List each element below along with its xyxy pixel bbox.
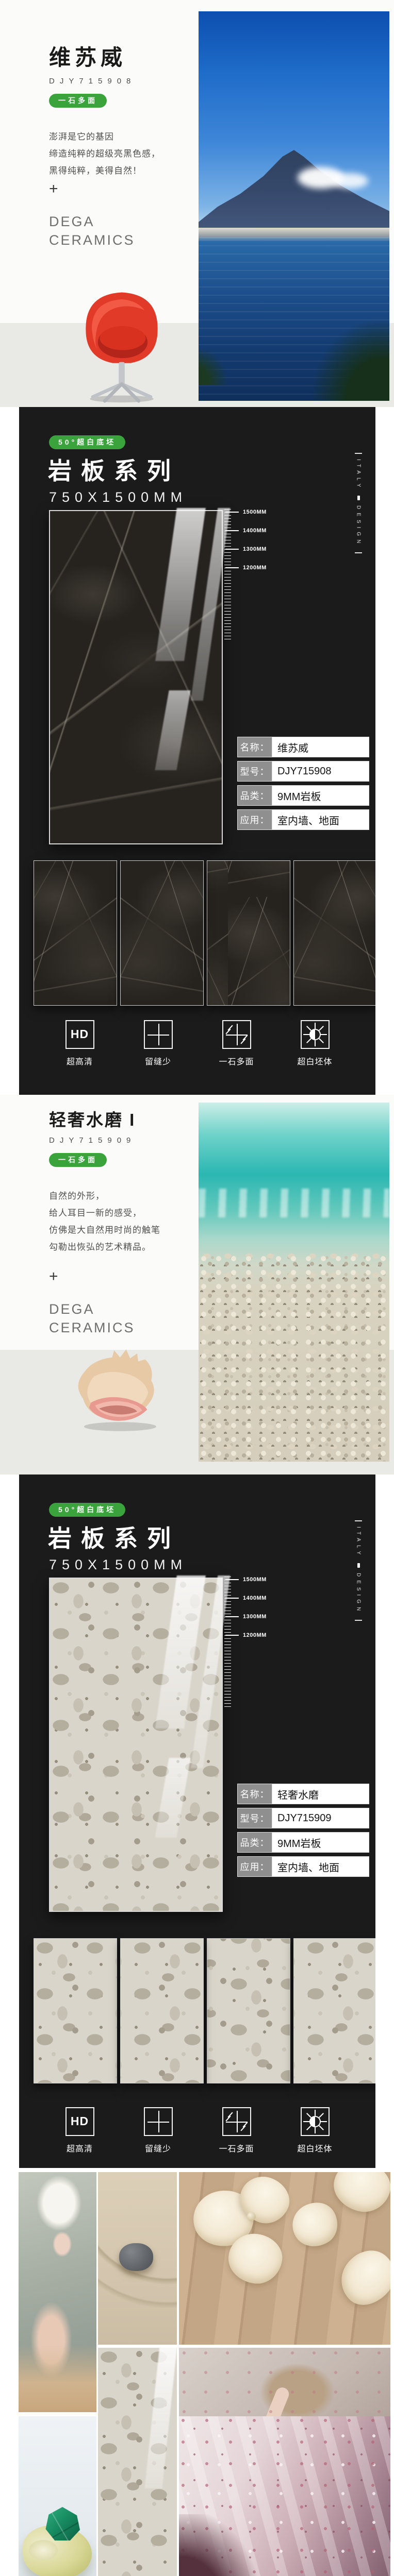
tile-swatch bbox=[293, 1938, 375, 2083]
feature-white-body: 超白坯体 bbox=[292, 2107, 338, 2154]
tick-line bbox=[225, 1598, 239, 1599]
red-chair-image bbox=[71, 284, 172, 404]
feature-less-seams: 留缝少 bbox=[136, 2107, 181, 2154]
spec-value: 室内墙、地面 bbox=[272, 1856, 369, 1877]
brand-name: DEGA CERAMICS bbox=[49, 1300, 135, 1337]
tile-swatches bbox=[34, 860, 375, 1006]
dash-line bbox=[355, 1520, 362, 1521]
pebble-texture bbox=[199, 1253, 389, 1462]
spec-row: 应用：室内墙、地面 bbox=[237, 809, 369, 830]
series-size: 750X1500MM bbox=[49, 489, 187, 505]
conch-shell-image bbox=[64, 1345, 174, 1434]
italy-design-label: ITALY DESIGN bbox=[355, 1518, 362, 1623]
spec-table: 名称：轻奢水磨 型号：DJY715909 品类：9MM岩板 应用：室内墙、地面 bbox=[237, 1784, 369, 1877]
spec-key: 应用： bbox=[237, 809, 272, 830]
ruler-value: 1400MM bbox=[243, 528, 267, 534]
grid-line bbox=[237, 1024, 238, 1045]
sun-core bbox=[309, 2116, 321, 2127]
product-detail-page: 维苏威 DJY715908 一石多面 澎湃是它的基因 缔造纯粹的超级亮黑色感， … bbox=[0, 0, 394, 2576]
ruler-label: 1200MM bbox=[225, 565, 267, 571]
product-code: DJY715908 bbox=[49, 77, 160, 86]
foliage bbox=[312, 320, 389, 401]
gloss-reflection bbox=[155, 690, 190, 770]
ruler-value: 1300MM bbox=[243, 1614, 267, 1620]
brand-line: DEGA bbox=[49, 214, 95, 229]
dash-line bbox=[355, 1620, 362, 1621]
spec-key: 品类： bbox=[237, 785, 272, 806]
product-description: 澎湃是它的基因 缔造纯粹的超级亮黑色感， 黑得纯粹，美得自然！ bbox=[49, 128, 160, 179]
intro-copy: 轻奢水磨 I DJY715909 一石多面 自然的外形， 给人耳目一新的感受， … bbox=[49, 1106, 160, 1256]
feature-label: 超高清 bbox=[67, 2142, 93, 2154]
feature-label: 超白坯体 bbox=[297, 1055, 332, 1067]
feature-hd: HD 超高清 bbox=[57, 2107, 103, 2154]
cloud bbox=[332, 173, 368, 189]
ruler-value: 1200MM bbox=[243, 565, 267, 571]
spec-key: 应用： bbox=[237, 1856, 272, 1877]
spec-value: 维苏威 bbox=[272, 737, 369, 757]
portrait-photo-white-wig bbox=[19, 2172, 96, 2412]
ruler-label: 1400MM bbox=[225, 528, 267, 534]
feature-label: 超白坯体 bbox=[297, 2142, 332, 2154]
multi-face-icon bbox=[222, 2107, 251, 2136]
series-badge: 50°超白底坯 bbox=[49, 435, 125, 449]
gloss-reflection bbox=[144, 2348, 177, 2488]
tick-line bbox=[225, 1616, 239, 1617]
product-section-2: 50°超白底坯 岩板系列 750X1500MM ITALY DESIGN 150… bbox=[19, 1475, 375, 2168]
gloss-reflection bbox=[155, 508, 206, 661]
tick-line bbox=[225, 512, 239, 513]
grid-line bbox=[158, 2111, 159, 2132]
dash-line bbox=[355, 552, 362, 553]
ruler-value: 1300MM bbox=[243, 546, 267, 552]
hd-icon: HD bbox=[65, 2107, 94, 2136]
brand-line: CERAMICS bbox=[49, 1320, 135, 1335]
feature-multi-face: 一石多面 bbox=[214, 1020, 259, 1067]
spec-key: 型号： bbox=[237, 1808, 272, 1828]
tile-swatch bbox=[120, 1938, 204, 2083]
tile-swatch bbox=[293, 860, 375, 1006]
tile-swatch bbox=[34, 860, 117, 1006]
gloss-reflection bbox=[155, 1758, 190, 1838]
petal bbox=[285, 2195, 346, 2255]
side-word: DESIGN bbox=[356, 505, 362, 547]
tick-line bbox=[225, 1635, 239, 1636]
tick-line bbox=[225, 1579, 239, 1580]
tile-swatches bbox=[34, 1938, 375, 2083]
sun-core bbox=[309, 1029, 321, 1040]
brand-name: DEGA CERAMICS bbox=[49, 212, 135, 250]
product-code: DJY715909 bbox=[49, 1136, 160, 1145]
terrazzo-detail-photo bbox=[98, 2348, 177, 2576]
spec-row: 应用：室内墙、地面 bbox=[237, 1856, 369, 1877]
dash-line bbox=[355, 453, 362, 454]
feature-white-body: 超白坯体 bbox=[292, 1020, 338, 1067]
plus-icon: + bbox=[49, 181, 135, 197]
ruler-value: 1200MM bbox=[243, 1632, 267, 1638]
mood-collage bbox=[0, 2168, 394, 2576]
white-flowers-photo bbox=[179, 2172, 390, 2345]
size-ruler: 1500MM 1400MM 1300MM 1200MM bbox=[224, 1577, 286, 1710]
side-word: ITALY bbox=[356, 1527, 362, 1558]
spec-value: 室内墙、地面 bbox=[272, 809, 369, 830]
grid-line bbox=[158, 1024, 159, 1045]
tile-sample-large bbox=[49, 1578, 223, 1912]
mineral-base bbox=[29, 2540, 58, 2561]
desc-line: 仿佛是大自然用时尚的触笔 bbox=[49, 1225, 160, 1235]
green-crystal-mineral-photo bbox=[19, 2416, 96, 2576]
feature-less-seams: 留缝少 bbox=[136, 1020, 181, 1067]
vesuvius-photo bbox=[199, 11, 389, 401]
red-chair-illustration bbox=[71, 284, 172, 404]
series-badge: 50°超白底坯 bbox=[49, 1503, 125, 1517]
feature-list: HD 超高清 留缝少 一石多面 超白坯体 bbox=[19, 1020, 375, 1067]
feature-label: 一石多面 bbox=[219, 2142, 254, 2154]
hd-glyph: HD bbox=[67, 1027, 93, 1041]
product-title: 轻奢水磨 I bbox=[49, 1106, 160, 1131]
spec-value: DJY715908 bbox=[272, 761, 369, 782]
spec-key: 名称： bbox=[237, 737, 272, 757]
conch-shell-illustration bbox=[64, 1345, 174, 1434]
spec-key: 名称： bbox=[237, 1784, 272, 1804]
size-ruler: 1500MM 1400MM 1300MM 1200MM bbox=[224, 509, 286, 643]
tile-swatch bbox=[207, 1938, 290, 2083]
zen-stone bbox=[119, 2243, 153, 2271]
side-word: ITALY bbox=[356, 459, 362, 490]
spec-value: 9MM岩板 bbox=[272, 1832, 369, 1853]
sea-pebbles-photo bbox=[199, 1103, 389, 1462]
tile-swatch bbox=[120, 860, 204, 1006]
ruler-label: 1200MM bbox=[225, 1632, 267, 1638]
desc-line: 给人耳目一新的感受， bbox=[49, 1208, 142, 1218]
shadow-corner bbox=[179, 2514, 259, 2576]
desc-line: 缔造纯粹的超级亮黑色感， bbox=[49, 149, 160, 159]
hd-glyph: HD bbox=[67, 2114, 93, 2128]
ruler-label: 1500MM bbox=[225, 509, 267, 515]
ruler-value: 1500MM bbox=[243, 1577, 267, 1583]
grid-icon bbox=[144, 1020, 173, 1049]
product-section-1: 50°超白底坯 岩板系列 750X1500MM ITALY DESIGN 150… bbox=[19, 407, 375, 1095]
product-title: 维苏威 bbox=[49, 40, 160, 72]
feature-label: 一石多面 bbox=[219, 1055, 254, 1067]
series-title: 岩板系列 bbox=[48, 452, 180, 486]
ruler-value: 1500MM bbox=[243, 509, 267, 515]
pearl-center bbox=[247, 2212, 256, 2221]
ruler-label: 1400MM bbox=[225, 1595, 267, 1601]
tick-line bbox=[225, 530, 239, 531]
white-body-icon bbox=[301, 2107, 330, 2136]
foliage bbox=[199, 346, 228, 385]
tick-line bbox=[225, 567, 239, 568]
feature-label: 留缝少 bbox=[145, 1055, 171, 1067]
side-word: DESIGN bbox=[356, 1573, 362, 1614]
intro-section-vesuvius: 维苏威 DJY715908 一石多面 澎湃是它的基因 缔造纯粹的超级亮黑色感， … bbox=[0, 0, 394, 407]
feature-multi-face: 一石多面 bbox=[214, 2107, 259, 2154]
plus-icon: + bbox=[49, 1269, 135, 1284]
spec-row: 品类：9MM岩板 bbox=[237, 1832, 369, 1853]
series-size: 750X1500MM bbox=[49, 1557, 187, 1573]
hd-icon: HD bbox=[65, 1020, 94, 1049]
gloss-reflection bbox=[155, 1575, 206, 1728]
petal bbox=[331, 2240, 390, 2315]
wave-highlight bbox=[199, 1189, 389, 1217]
feature-badge: 一石多面 bbox=[49, 94, 107, 108]
brand-mark-icon bbox=[357, 1563, 360, 1568]
spec-row: 名称：维苏威 bbox=[237, 737, 369, 757]
tile-sample-large bbox=[49, 510, 223, 844]
spec-row: 型号：DJY715908 bbox=[237, 761, 369, 782]
spec-value: DJY715909 bbox=[272, 1808, 369, 1828]
feature-badge: 一石多面 bbox=[49, 1153, 107, 1167]
feature-label: 留缝少 bbox=[145, 2142, 171, 2154]
intro-section-shuimo-1: 轻奢水磨 I DJY715909 一石多面 自然的外形， 给人耳目一新的感受， … bbox=[0, 1095, 394, 1475]
white-body-icon bbox=[301, 1020, 330, 1049]
desc-line: 黑得纯粹，美得自然！ bbox=[49, 166, 142, 176]
tick-line bbox=[225, 549, 239, 550]
brand-block: + DEGA CERAMICS bbox=[49, 1269, 135, 1337]
brand-line: CERAMICS bbox=[49, 232, 135, 248]
brand-line: DEGA bbox=[49, 1301, 95, 1317]
brand-block: + DEGA CERAMICS bbox=[49, 181, 135, 250]
spec-value: 9MM岩板 bbox=[272, 785, 369, 806]
zen-sand-stone-photo bbox=[98, 2172, 177, 2345]
series-title: 岩板系列 bbox=[48, 1520, 180, 1554]
grid-icon bbox=[144, 2107, 173, 2136]
desc-line: 勾勒出恢弘的艺术精品。 bbox=[49, 1242, 151, 1252]
italy-design-label: ITALY DESIGN bbox=[355, 451, 362, 555]
product-description: 自然的外形， 给人耳目一新的感受， 仿佛是大自然用时尚的触笔 勾勒出恢弘的艺术精… bbox=[49, 1188, 160, 1256]
brand-mark-icon bbox=[357, 496, 360, 500]
ruler-value: 1400MM bbox=[243, 1595, 267, 1601]
desc-line: 自然的外形， bbox=[49, 1191, 105, 1201]
ruler-label: 1300MM bbox=[225, 546, 267, 552]
spec-table: 名称：维苏威 型号：DJY715908 品类：9MM岩板 应用：室内墙、地面 bbox=[237, 737, 369, 830]
multi-face-icon bbox=[222, 1020, 251, 1049]
feature-label: 超高清 bbox=[67, 1055, 93, 1067]
spec-value: 轻奢水磨 bbox=[272, 1784, 369, 1804]
intro-copy: 维苏威 DJY715908 一石多面 澎湃是它的基因 缔造纯粹的超级亮黑色感， … bbox=[49, 40, 160, 179]
grid-line bbox=[237, 2111, 238, 2132]
spec-row: 品类：9MM岩板 bbox=[237, 785, 369, 806]
dress-layer bbox=[19, 2172, 96, 2412]
floral-fabric-photo bbox=[179, 2416, 390, 2576]
feature-list: HD 超高清 留缝少 一石多面 超白坯体 bbox=[19, 2107, 375, 2154]
tile-swatch bbox=[207, 860, 290, 1006]
feature-hd: HD 超高清 bbox=[57, 1020, 103, 1067]
tile-swatch bbox=[34, 1938, 117, 2083]
spec-row: 名称：轻奢水磨 bbox=[237, 1784, 369, 1804]
desc-line: 澎湃是它的基因 bbox=[49, 132, 114, 142]
petal bbox=[329, 2172, 390, 2217]
spec-key: 型号： bbox=[237, 761, 272, 782]
ruler-label: 1500MM bbox=[225, 1577, 267, 1583]
ruler-label: 1300MM bbox=[225, 1614, 267, 1620]
spec-row: 型号：DJY715909 bbox=[237, 1808, 369, 1828]
spec-key: 品类： bbox=[237, 1832, 272, 1853]
